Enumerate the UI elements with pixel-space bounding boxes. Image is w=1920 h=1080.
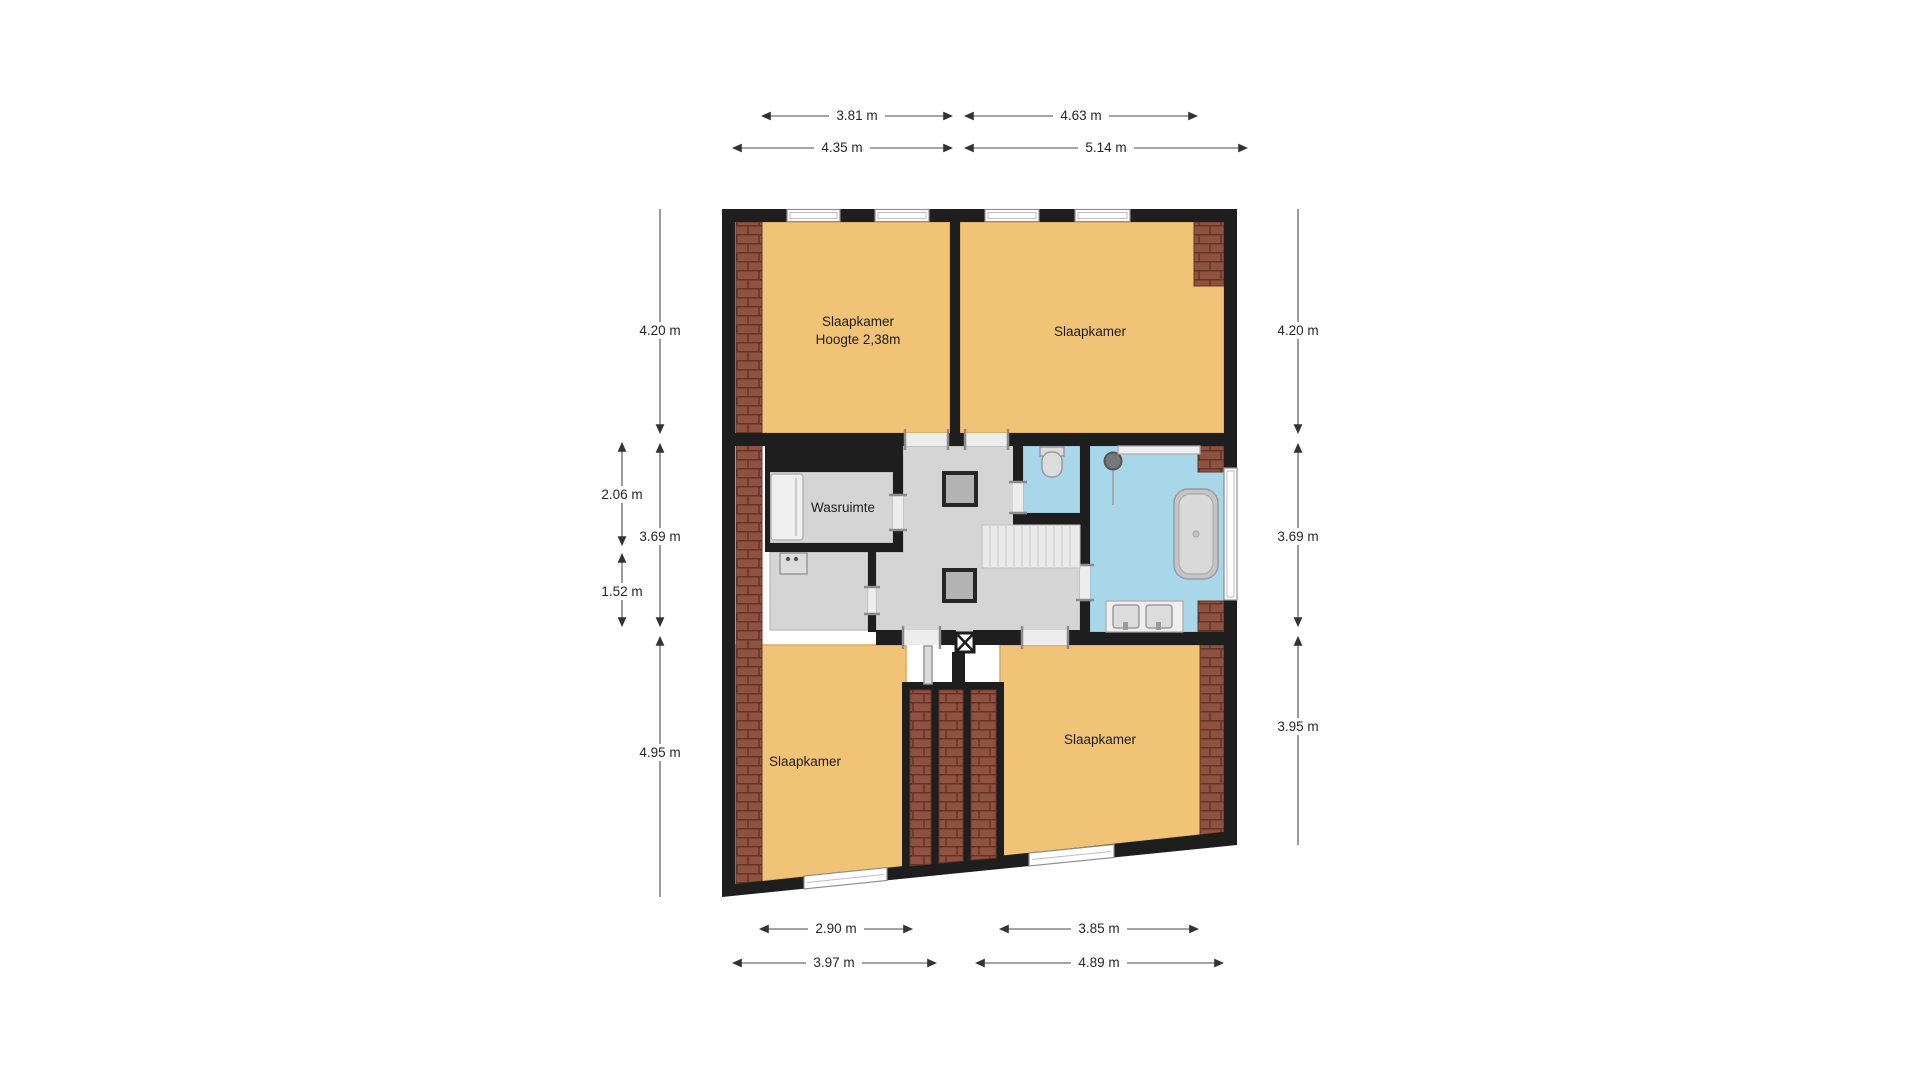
dim-label: 3.97 m	[813, 955, 854, 970]
dim-top-4: 5.14 m	[965, 139, 1247, 156]
dim-bottom-4: 4.89 m	[976, 954, 1223, 971]
dim-bottom-1: 2.90 m	[760, 920, 912, 937]
wall-laundry-dark-band	[768, 446, 900, 472]
wall-laundry-left	[765, 446, 770, 552]
chimney-stem	[952, 652, 965, 684]
door-leaf-bedroom-bl	[924, 646, 932, 684]
window-top-2	[875, 210, 929, 222]
wall-hall-top-c	[1008, 433, 1224, 446]
wall-closet-b	[868, 614, 876, 632]
window-top-3	[985, 210, 1039, 222]
staircase	[982, 525, 1080, 568]
wardrobe-icon	[771, 474, 803, 540]
dim-label: 2.90 m	[815, 921, 856, 936]
chimney-shaft-icon	[956, 633, 974, 652]
chimney-brick-3	[971, 690, 996, 860]
door-bedroom-tr	[965, 433, 1008, 446]
dim-label: 4.89 m	[1078, 955, 1119, 970]
wall-wc-left	[1013, 446, 1023, 482]
wall-laundry-right-b	[893, 530, 903, 552]
label-laundry: Wasruimte	[811, 500, 875, 515]
dim-left-5: 4.95 m	[632, 637, 688, 897]
wall-hall-bottom-d	[1068, 630, 1080, 645]
roof-hatch-left	[736, 222, 762, 884]
wall-bath-bottom	[1080, 632, 1224, 645]
door-closet	[868, 587, 876, 614]
wall-wc-bottom	[1013, 513, 1090, 525]
wall-closet-a	[868, 552, 876, 587]
window-top-1	[787, 210, 840, 222]
dim-label: 4.35 m	[821, 140, 862, 155]
wall-hall-bottom-c	[973, 630, 1022, 645]
dim-label: 3.69 m	[639, 529, 680, 544]
dim-label: 3.81 m	[836, 108, 877, 123]
door-bedroom-tl	[905, 433, 948, 446]
skylight-icon	[944, 570, 975, 601]
washing-machine-icon	[780, 553, 807, 574]
dim-right-1: 4.20 m	[1270, 209, 1326, 433]
wall-laundry-bottom	[765, 543, 903, 552]
door-bedroom-br	[1022, 630, 1068, 645]
toilet-icon	[1040, 447, 1064, 477]
dim-bottom-3: 3.97 m	[733, 954, 936, 971]
bath-shelf	[1118, 446, 1200, 454]
door-bedroom-bl	[903, 630, 940, 645]
wall-laundry-right-a	[893, 446, 903, 495]
roof-hatch-right	[1200, 645, 1224, 835]
wall-hall-top-b	[948, 433, 965, 446]
wall-hall-bottom-a	[876, 630, 903, 645]
floor-plan-canvas: Slaapkamer Hoogte 2,38m Slaapkamer Wasru…	[0, 0, 1920, 1080]
dim-label: 3.69 m	[1277, 529, 1318, 544]
wall-hall-top-a	[735, 433, 905, 446]
roof-hatch-bath-bottom	[1198, 601, 1224, 632]
window-top-4	[1075, 210, 1130, 222]
dim-label: 4.20 m	[1277, 323, 1318, 338]
bedroom-bottom-right-floor	[1000, 645, 1224, 857]
dim-label: 5.14 m	[1085, 140, 1126, 155]
skylight-icon	[944, 473, 976, 505]
dim-label: 1.52 m	[601, 584, 642, 599]
door-bathroom	[1080, 565, 1090, 600]
chimney-bricks	[910, 690, 996, 866]
double-sink-vanity-icon	[1106, 601, 1183, 632]
chimney-brick-2	[939, 690, 963, 863]
door-wc	[1013, 482, 1023, 513]
label-bedroom-bottom-left: Slaapkamer	[769, 754, 842, 769]
dim-label: 3.85 m	[1078, 921, 1119, 936]
door-laundry	[893, 495, 903, 530]
label-bedroom-top-left: Slaapkamer	[822, 314, 895, 329]
dim-top-2: 4.63 m	[965, 107, 1197, 124]
dim-right-2: 3.69 m	[1270, 444, 1326, 626]
chimney-brick-1	[910, 690, 931, 866]
dim-label: 4.20 m	[639, 323, 680, 338]
label-bedroom-top-right: Slaapkamer	[1054, 324, 1127, 339]
dim-bottom-2: 3.85 m	[1000, 920, 1198, 937]
dim-label: 3.95 m	[1277, 719, 1318, 734]
wall-top-bedrooms-divider	[950, 222, 960, 433]
dim-top-3: 4.35 m	[733, 139, 952, 156]
bathtub-icon	[1174, 489, 1218, 579]
roof-hatch-top-right	[1194, 222, 1224, 286]
label-bedroom-bottom-right: Slaapkamer	[1064, 732, 1137, 747]
dim-label: 4.95 m	[639, 745, 680, 760]
wall-hall-bottom-b	[940, 630, 956, 645]
dim-top-1: 3.81 m	[762, 107, 952, 124]
dim-label: 4.63 m	[1060, 108, 1101, 123]
dim-left-1: 4.20 m	[632, 209, 688, 433]
wall-bath-left-b	[1080, 600, 1090, 632]
dim-label: 2.06 m	[601, 487, 642, 502]
wall-bath-left-a	[1080, 446, 1090, 565]
label-bedroom-top-left-height: Hoogte 2,38m	[816, 332, 901, 347]
dim-right-3: 3.95 m	[1270, 637, 1326, 845]
dim-left-4: 1.52 m	[594, 554, 650, 626]
roof-hatch-bath-top	[1198, 446, 1224, 472]
window-bathroom-right	[1224, 468, 1237, 600]
